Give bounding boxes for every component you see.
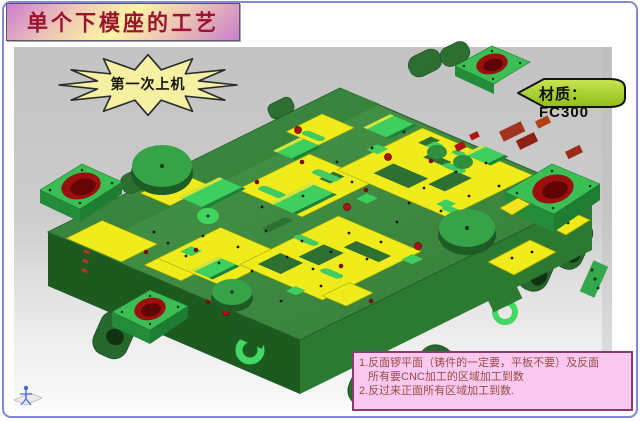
notes-box: 1.反面锣平面（铸件的一定要，平板不要）及反面 所有要CNC加工的区域加工到数 … — [352, 351, 633, 411]
page-title-bar: 单个下模座的工艺 — [6, 3, 240, 41]
material-callout: 材质：FC300 — [515, 74, 629, 112]
page-title: 单个下模座的工艺 — [27, 6, 219, 38]
material-label: 材质：FC300 — [539, 83, 629, 121]
note-line-1: 1.反面锣平面（铸件的一定要，平板不要）及反面 — [359, 356, 627, 370]
burst-label: 第一次上机 — [57, 74, 239, 94]
note-line-2: 所有要CNC加工的区域加工到数 — [359, 370, 627, 384]
note-line-3: 2.反过来正面所有区域加工到数. — [359, 384, 627, 398]
slide-canvas: 单个下模座的工艺 第一次上机 材质：FC300 1.反面锣平面（铸件的一定要，平… — [0, 0, 640, 422]
process-step-burst: 第一次上机 — [57, 50, 239, 120]
